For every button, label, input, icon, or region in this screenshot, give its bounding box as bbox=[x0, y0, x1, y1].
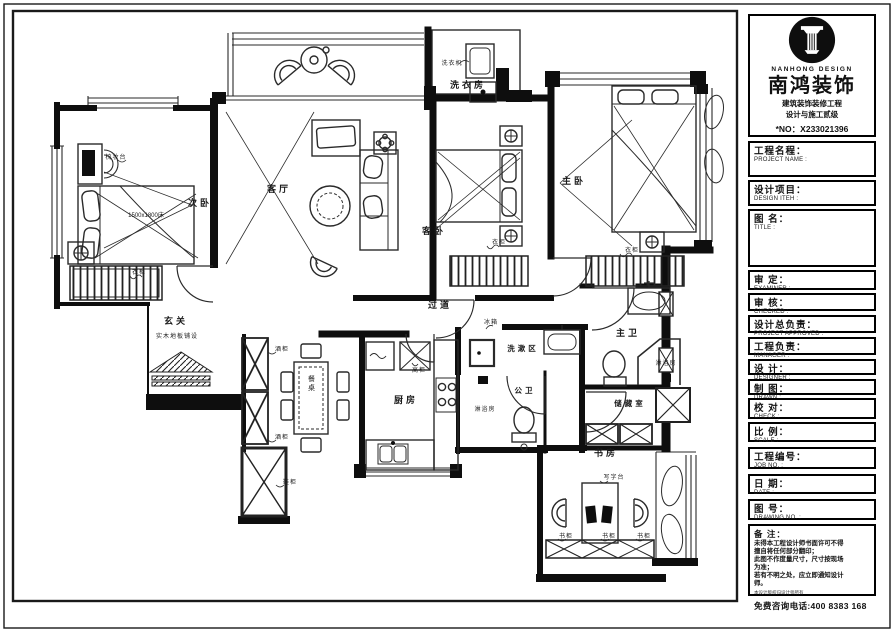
field-scale: 比 例： SCALE : bbox=[748, 422, 876, 442]
field-cn: 日 期： bbox=[754, 479, 870, 490]
note-line: 擅自将任何部分翻印； bbox=[754, 548, 870, 556]
fridge-box bbox=[470, 340, 494, 366]
field-en: SCALE : bbox=[754, 438, 870, 445]
label-shower-public: 淋浴房 bbox=[474, 405, 495, 413]
note-line: 为准； bbox=[754, 564, 870, 572]
label-shoe-cabinet: 鞋柜 bbox=[283, 478, 297, 486]
storage-side-cabinet bbox=[656, 388, 690, 422]
field-en: DATE : bbox=[754, 490, 870, 497]
brand-name-cn: 南鸿装饰 bbox=[768, 75, 856, 97]
label-writing-desk: 写字台 bbox=[603, 473, 624, 481]
field-cn: 工程编号： bbox=[754, 452, 870, 463]
field-cn: 设计项目： bbox=[754, 185, 870, 196]
label-tall-cabinet: 高柜 bbox=[412, 366, 426, 374]
brand-license-no: *NO：X233021396 bbox=[776, 123, 849, 135]
label-bed-size: 1500x1800床 bbox=[128, 211, 164, 219]
field-cn: 制 图： bbox=[754, 384, 870, 395]
field-examiner: 审 定： EXAMINER : bbox=[748, 270, 876, 290]
side-table-symbol bbox=[68, 242, 94, 264]
field-cn: 设 计： bbox=[754, 364, 870, 375]
field-en: TITLE : bbox=[754, 225, 870, 232]
field-en: JOB NO. : bbox=[754, 463, 870, 470]
dining-set bbox=[281, 344, 349, 452]
nightstand-master bbox=[640, 232, 664, 252]
nightstand-guest-1 bbox=[500, 126, 522, 146]
field-project-approved: 设计总负责： PROJECT APPROVED : bbox=[748, 315, 876, 333]
coffee-table bbox=[310, 186, 350, 226]
lounge-chair bbox=[306, 257, 337, 282]
label-wine-cabinet-1: 酒柜 bbox=[275, 345, 289, 353]
drawing-sheet: 次卧 客厅 洗衣房 客卧 主卧 过道 玄关 厨房 洗漱区 公卫 主卫 储藏室 书… bbox=[0, 0, 895, 633]
label-dining-table: 餐桌 bbox=[308, 374, 316, 393]
wardrobe-master-box bbox=[586, 256, 684, 286]
field-title: 图 名： TITLE : bbox=[748, 209, 876, 267]
label-guest-bedroom: 客卧 bbox=[421, 225, 446, 236]
label-dresser: 梳妆台 bbox=[105, 153, 126, 161]
label-master-bedroom: 主卧 bbox=[562, 175, 586, 186]
label-fridge: 冰箱 bbox=[484, 318, 498, 326]
note-line: 此图不作度量尺寸，尺寸按现场 bbox=[754, 556, 870, 564]
field-cn: 设计总负责： bbox=[754, 320, 870, 331]
field-cn: 工程名程： bbox=[754, 146, 870, 157]
field-project-name: 工程名程： PROJECT NAME : bbox=[748, 141, 876, 177]
note-line: 未得本工程设计师书面许可不得 bbox=[754, 540, 870, 548]
field-en: CHECK : bbox=[754, 414, 870, 421]
label-storage: 储藏室 bbox=[614, 398, 646, 408]
notes-label: 备 注： bbox=[754, 529, 870, 540]
field-en: EXAMINER : bbox=[754, 286, 870, 293]
field-cn: 工程负责： bbox=[754, 342, 870, 353]
balcony-furniture bbox=[268, 47, 360, 85]
field-design-item: 设计项目： DESIGN ITEH : bbox=[748, 180, 876, 206]
note-line: 师。 bbox=[754, 580, 870, 588]
brand-subtitle-2: 设计与施工贰级 bbox=[786, 110, 839, 119]
field-job-no: 工程编号： JOB NO. : bbox=[748, 447, 876, 469]
label-washing-machine: 洗衣机 bbox=[441, 59, 462, 67]
bed-master bbox=[612, 86, 696, 232]
field-date: 日 期： DATE : bbox=[748, 474, 876, 494]
label-master-bath: 主卫 bbox=[616, 327, 640, 338]
company-logo-box: NANHONG DESIGN 南鸿装饰 建筑装饰装修工程 设计与施工贰级 *NO… bbox=[748, 14, 876, 137]
notes-fine-print: 本设计版权归设计师所有 bbox=[754, 590, 870, 596]
company-logo-icon bbox=[786, 16, 838, 64]
field-designer: 设 计： DESIGNER : bbox=[748, 359, 876, 375]
label-wash-area: 洗漱区 bbox=[507, 343, 539, 353]
hotline-phone: 免费咨询电话:400 8383 168 bbox=[754, 600, 870, 612]
field-cn: 图 号： bbox=[754, 504, 870, 515]
shoe-cabinet-box bbox=[242, 448, 286, 516]
label-kitchen: 厨房 bbox=[394, 394, 418, 405]
field-en: DRAWING NO. : bbox=[754, 515, 870, 522]
sofa bbox=[360, 150, 398, 250]
field-check: 校 对： CHECK : bbox=[748, 398, 876, 419]
notes-box: 备 注： 未得本工程设计师书面许可不得 擅自将任何部分翻印； 此图不作度量尺寸，… bbox=[748, 524, 876, 596]
label-wardrobe-master: 衣柜 bbox=[625, 246, 639, 254]
field-drawn: 制 图： DRAWN : bbox=[748, 379, 876, 395]
label-laundry: 洗衣房 bbox=[450, 79, 486, 90]
label-bookcase-3: 书柜 bbox=[637, 532, 651, 540]
bed-guest bbox=[436, 150, 522, 222]
field-cn: 比 例： bbox=[754, 427, 870, 438]
wash-basin bbox=[544, 325, 580, 354]
label-living-room: 客厅 bbox=[266, 183, 291, 194]
label-shower-master: 淋浴房 bbox=[655, 359, 676, 367]
wardrobe-bed2-box bbox=[70, 266, 162, 300]
label-bedroom2: 次卧 bbox=[188, 197, 212, 208]
label-wardrobe-bed2: 衣柜 bbox=[132, 268, 146, 276]
wardrobe-guest-box bbox=[450, 256, 528, 286]
field-manager: 工程负责： MANAGER : bbox=[748, 337, 876, 355]
field-cn: 校 对： bbox=[754, 403, 870, 414]
dresser-box bbox=[78, 144, 118, 184]
label-wine-cabinet-2: 酒柜 bbox=[275, 433, 289, 441]
note-line: 若有不明之处，应立即通知设计 bbox=[754, 572, 870, 580]
label-corridor: 过道 bbox=[428, 299, 452, 310]
label-bookcase-1: 书柜 bbox=[559, 532, 573, 540]
bed-bedroom2 bbox=[78, 186, 198, 264]
tv-cabinet bbox=[312, 120, 360, 156]
brand-subtitle-1: 建筑装饰装修工程 bbox=[782, 99, 842, 108]
foyer-mat bbox=[150, 352, 212, 386]
label-wood-floor: 实木地板铺设 bbox=[156, 332, 198, 340]
brand-name-en: NANHONG DESIGN bbox=[771, 66, 852, 73]
label-study: 书房 bbox=[594, 447, 618, 458]
field-cn: 审 核： bbox=[754, 298, 870, 309]
label-public-bath: 公卫 bbox=[515, 386, 536, 395]
field-cn: 图 名： bbox=[754, 214, 870, 225]
field-drawing-no: 图 号： DRAWING NO. : bbox=[748, 499, 876, 520]
study-top-cabinets bbox=[586, 424, 652, 444]
field-en: PROJECT NAME : bbox=[754, 157, 870, 164]
field-en: DESIGN ITEH : bbox=[754, 196, 870, 203]
label-bookcase-2: 书柜 bbox=[602, 532, 616, 540]
kitchen-fittings bbox=[366, 340, 458, 470]
field-cn: 审 定： bbox=[754, 275, 870, 286]
label-wardrobe-guest: 衣柜 bbox=[492, 238, 506, 246]
label-foyer: 玄关 bbox=[164, 315, 188, 326]
field-checked: 审 核： CHECKED : bbox=[748, 293, 876, 311]
